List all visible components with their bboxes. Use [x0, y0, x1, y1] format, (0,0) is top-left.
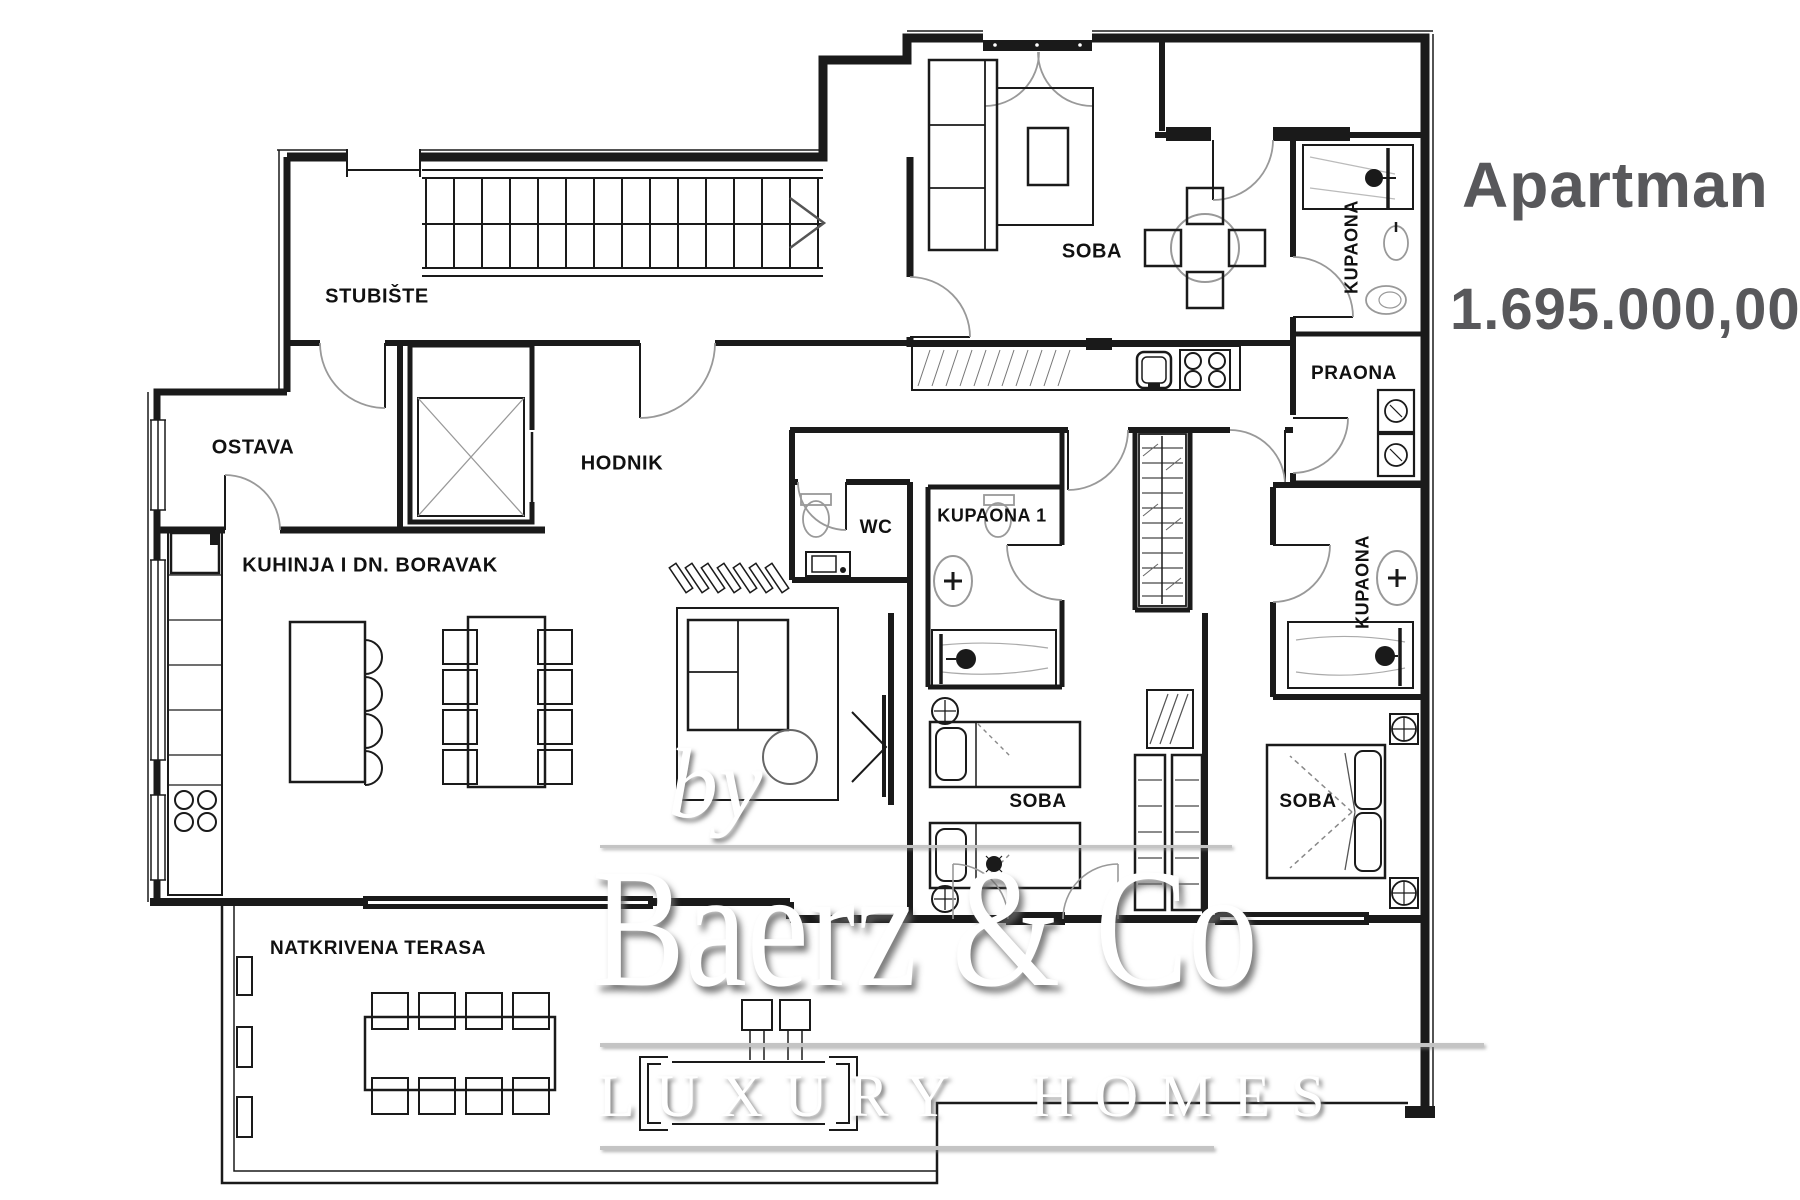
toilet-icon: [1366, 286, 1406, 314]
elevator-shaft: [410, 345, 537, 522]
room-label-soba-living: SOBA: [1062, 241, 1122, 264]
bathroom-1: [928, 430, 1062, 687]
listing-title: Apartman: [1462, 148, 1769, 222]
nightstand-with-lamp: [1390, 714, 1418, 744]
room-label-hodnik: HODNIK: [581, 453, 664, 476]
living-rug-and-table: [997, 88, 1093, 225]
bathtub-icon: [1288, 622, 1413, 688]
flower-icon: [986, 856, 1002, 872]
laundry-room: [1293, 334, 1425, 483]
room-label-kuhinja: KUHINJA I DN. BORAVAK: [242, 555, 498, 578]
entry-french-door: [983, 30, 1092, 106]
sink-icon: [934, 556, 972, 606]
sink-icon: [1377, 551, 1417, 605]
listing-price: 1.695.000,00: [1450, 276, 1800, 343]
kitchen-counter-top: [910, 338, 1293, 391]
dining-table-round: [1145, 188, 1265, 308]
room-label-ostava: OSTAVA: [212, 437, 295, 460]
plant-icon: [932, 886, 958, 912]
single-bed: [930, 722, 1080, 787]
room-label-kupaona-top: KUPAONA: [1342, 200, 1363, 294]
room-label-soba-middle: SOBA: [1009, 791, 1066, 813]
dining-table: [443, 617, 572, 787]
dryer-icon: [1378, 434, 1414, 476]
cooktop-icon: [1180, 350, 1230, 390]
wardrobe-corridor: [1135, 430, 1190, 610]
kitchen-left-counter: [168, 530, 222, 895]
closet-hatch-marks: [669, 563, 788, 592]
terrace-dining-table: [365, 993, 555, 1114]
kitchen-island: [290, 622, 382, 785]
plant-icon: [932, 698, 958, 724]
room-label-soba-right: SOBA: [1279, 791, 1336, 813]
kitchen-sink-icon: [1137, 352, 1171, 391]
wc-sink-icon: [806, 552, 850, 576]
room-label-kupaona-1: KUPAONA 1: [937, 506, 1046, 527]
washing-machine-icon: [1378, 390, 1414, 432]
nightstand-with-lamp: [1390, 878, 1418, 908]
watermark-rule: [600, 845, 1232, 848]
floor-plan-page: STUBIŠTE OSTAVA HODNIK KUHINJA I DN. BOR…: [0, 0, 1800, 1200]
bathroom-right: [1273, 485, 1425, 697]
watermark-rule: [600, 1146, 1214, 1150]
hob-icon: [175, 791, 216, 831]
wardrobe-between-bedrooms: [1135, 690, 1202, 910]
room-label-terasa: NATKRIVENA TERASA: [270, 938, 486, 960]
room-label-wc: WC: [860, 517, 893, 539]
room-label-stubiste: STUBIŠTE: [325, 286, 429, 309]
room-label-kupaona-right: KUPAONA: [1353, 535, 1374, 629]
sofa: [929, 60, 997, 250]
tv-lounge: [677, 608, 891, 805]
bathtub-icon: [932, 630, 1056, 687]
room-label-praona: PRAONA: [1311, 363, 1397, 385]
staircase: [422, 170, 824, 276]
watermark-rule: [600, 1043, 1484, 1047]
terrace-furniture: [640, 1000, 857, 1130]
pouf-icon: [763, 730, 817, 784]
left-windows: [150, 420, 166, 880]
shower-head-icon: [956, 649, 976, 669]
